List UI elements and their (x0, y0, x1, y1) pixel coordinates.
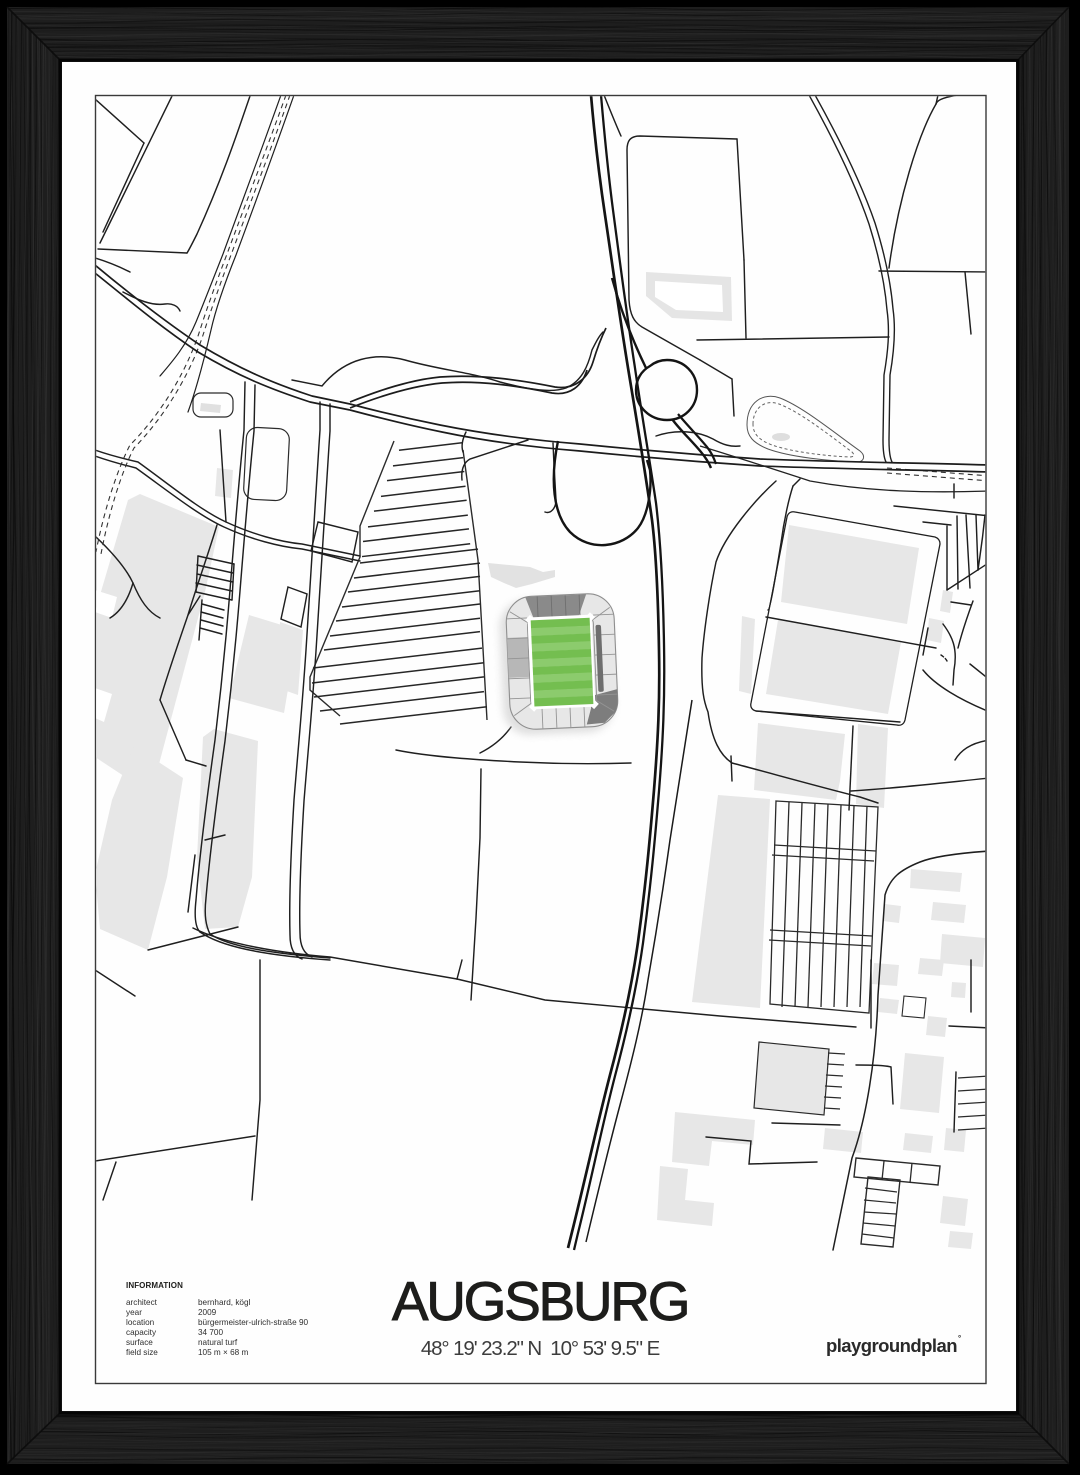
svg-text:capacity: capacity (126, 1328, 157, 1337)
svg-text:year: year (126, 1308, 142, 1317)
svg-text:surface: surface (126, 1338, 153, 1347)
svg-text:natural turf: natural turf (198, 1338, 238, 1347)
svg-text:field size: field size (126, 1348, 158, 1357)
svg-text:AUGSBURG: AUGSBURG (392, 1270, 688, 1332)
svg-text:bernhard, kögl: bernhard, kögl (198, 1298, 251, 1307)
svg-text:°: ° (958, 1334, 961, 1343)
svg-text:location: location (126, 1318, 155, 1327)
svg-text:105 m × 68 m: 105 m × 68 m (198, 1348, 248, 1357)
svg-text:bürgermeister-ulrich-straße 90: bürgermeister-ulrich-straße 90 (198, 1318, 309, 1327)
svg-text:34 700: 34 700 (198, 1328, 223, 1337)
svg-text:48° 19' 23.2" N 10° 53' 9.5": 48° 19' 23.2" N 10° 53' 9.5" E (421, 1337, 660, 1360)
svg-text:playgroundplan: playgroundplan (826, 1335, 957, 1356)
svg-text:architect: architect (126, 1298, 158, 1307)
svg-text:2009: 2009 (198, 1308, 217, 1317)
svg-text:INFORMATION: INFORMATION (126, 1281, 183, 1290)
